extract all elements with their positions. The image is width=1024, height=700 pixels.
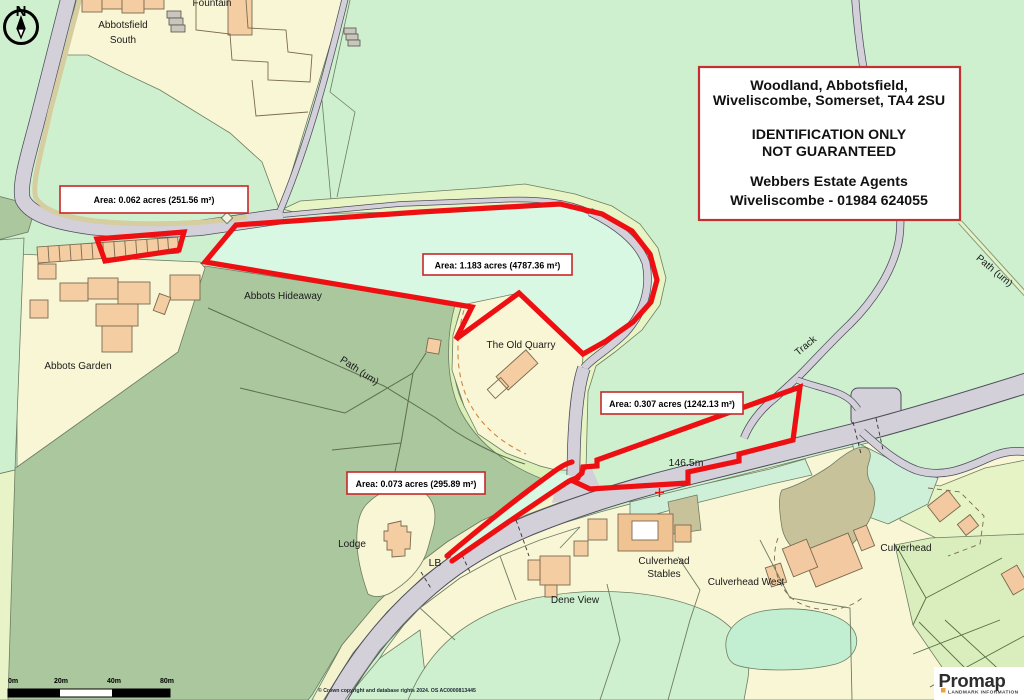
- svg-text:Abbotsfield: Abbotsfield: [98, 20, 147, 31]
- svg-text:South: South: [110, 35, 136, 46]
- svg-text:Abbots Hideaway: Abbots Hideaway: [244, 291, 322, 302]
- svg-text:IDENTIFICATION ONLY: IDENTIFICATION ONLY: [752, 127, 907, 143]
- svg-text:© Crown copyright and database: © Crown copyright and database rights 20…: [318, 687, 476, 694]
- svg-text:Culverhead West: Culverhead West: [708, 577, 785, 588]
- svg-text:Dene View: Dene View: [551, 595, 600, 606]
- svg-text:Promap: Promap: [938, 670, 1005, 691]
- svg-text:The Old Quarry: The Old Quarry: [487, 340, 556, 351]
- svg-text:Abbots Garden: Abbots Garden: [44, 361, 111, 372]
- svg-text:Wiveliscombe, Somerset, TA4 2S: Wiveliscombe, Somerset, TA4 2SU: [713, 93, 945, 109]
- svg-text:Culverhead: Culverhead: [638, 556, 689, 567]
- svg-text:LANDMARK INFORMATION: LANDMARK INFORMATION: [948, 690, 1019, 696]
- svg-text:80m: 80m: [160, 678, 174, 685]
- svg-text:Culverhead: Culverhead: [880, 543, 931, 554]
- svg-text:Wiveliscombe - 01984 624055: Wiveliscombe - 01984 624055: [730, 193, 928, 209]
- svg-text:Stables: Stables: [647, 569, 680, 580]
- svg-text:40m: 40m: [107, 678, 121, 685]
- svg-text:Fountain: Fountain: [193, 0, 232, 9]
- svg-text:Webbers Estate Agents: Webbers Estate Agents: [750, 174, 908, 190]
- svg-text:NOT GUARANTEED: NOT GUARANTEED: [762, 144, 896, 160]
- svg-text:0m: 0m: [8, 678, 18, 685]
- svg-text:Area: 0.307 acres (1242.13 m²): Area: 0.307 acres (1242.13 m²): [609, 399, 735, 409]
- svg-text:Lodge: Lodge: [338, 539, 366, 550]
- svg-text:Area: 1.183 acres (4787.36 m²): Area: 1.183 acres (4787.36 m²): [435, 261, 561, 271]
- svg-text:146.5m: 146.5m: [668, 457, 703, 469]
- svg-text:Woodland, Abbotsfield,: Woodland, Abbotsfield,: [750, 78, 908, 94]
- svg-text:Area: 0.062 acres (251.56 m²): Area: 0.062 acres (251.56 m²): [94, 195, 215, 205]
- svg-text:Area: 0.073 acres (295.89 m²): Area: 0.073 acres (295.89 m²): [356, 479, 477, 489]
- svg-text:LB: LB: [429, 557, 442, 569]
- svg-text:20m: 20m: [54, 678, 68, 685]
